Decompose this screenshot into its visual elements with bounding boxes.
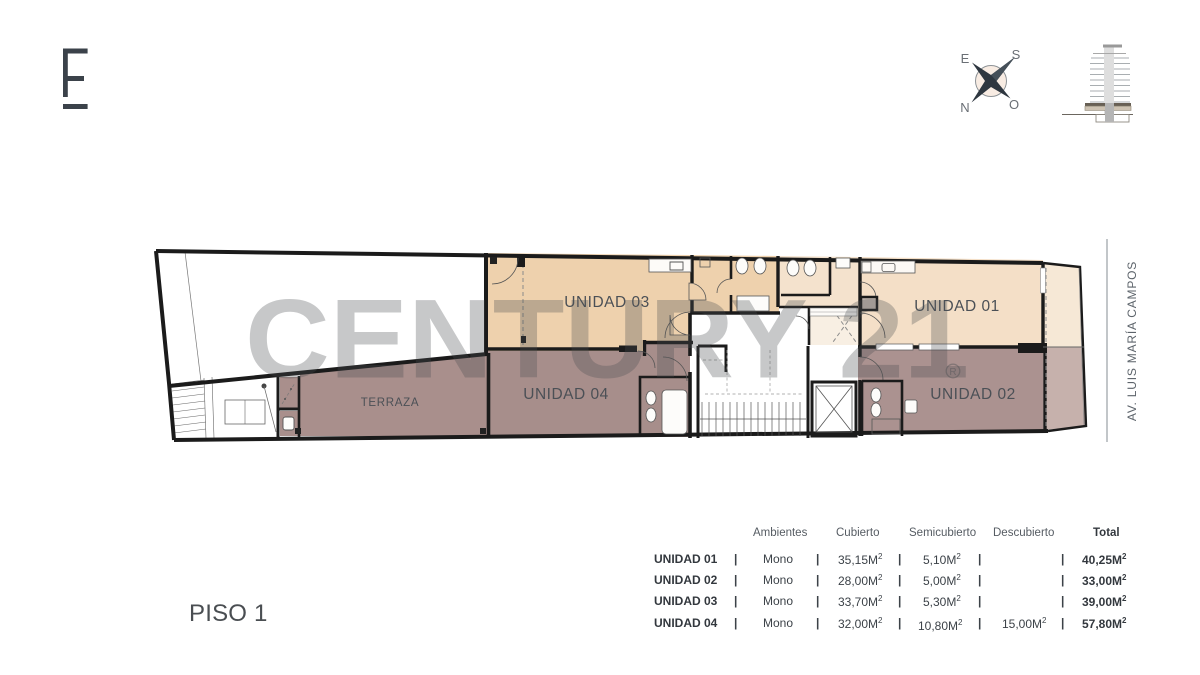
svg-text:UNIDAD 03: UNIDAD 03 xyxy=(564,294,649,311)
svg-text:S: S xyxy=(1012,47,1021,62)
svg-text:O: O xyxy=(1009,97,1019,112)
svg-text:UNIDAD 01: UNIDAD 01 xyxy=(914,298,999,315)
svg-text:UNIDAD 04: UNIDAD 04 xyxy=(523,386,608,403)
svg-text:E: E xyxy=(961,51,970,66)
svg-text:TERRAZA: TERRAZA xyxy=(361,397,420,409)
svg-text:R: R xyxy=(949,367,956,378)
svg-text:UNIDAD 02: UNIDAD 02 xyxy=(930,386,1015,403)
svg-text:AV. LUIS MARÍA CAMPOS: AV. LUIS MARÍA CAMPOS xyxy=(1124,261,1139,421)
svg-text:N: N xyxy=(960,100,969,115)
